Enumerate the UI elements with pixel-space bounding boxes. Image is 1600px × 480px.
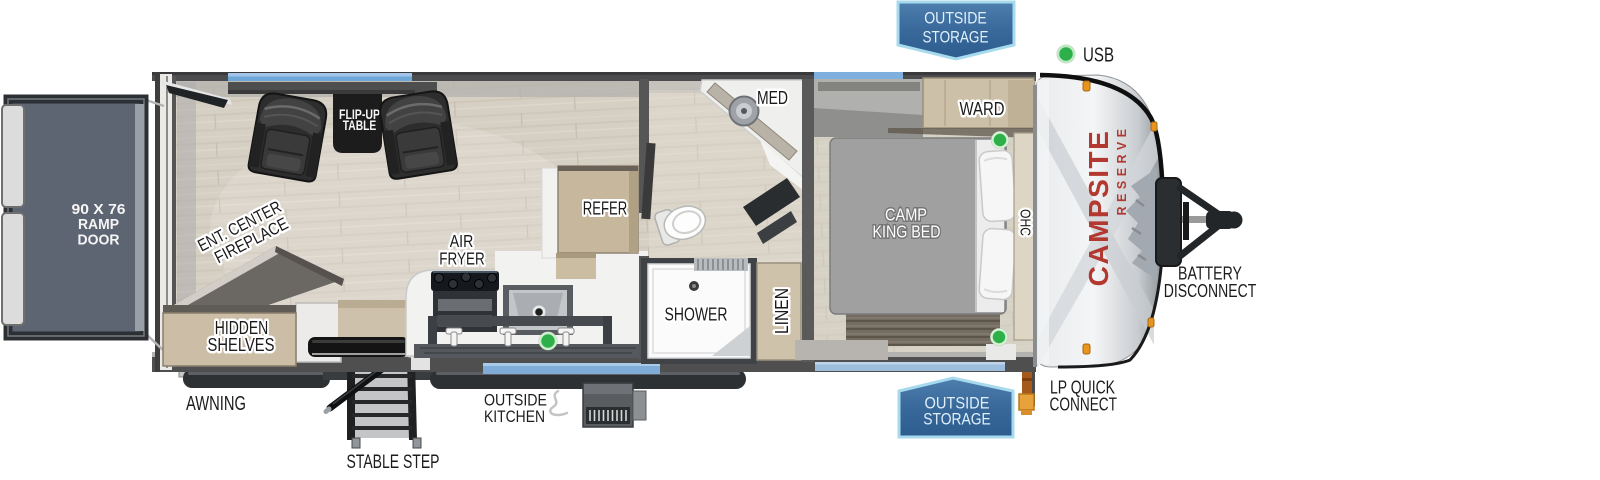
svg-text:STORAGE: STORAGE: [923, 29, 989, 47]
svg-text:RAMP: RAMP: [78, 216, 119, 233]
svg-text:STABLE STEP: STABLE STEP: [347, 452, 440, 473]
svg-text:OHC: OHC: [1016, 209, 1033, 236]
svg-text:MED: MED: [757, 88, 788, 108]
svg-text:FRYER: FRYER: [439, 249, 485, 269]
svg-text:CONNECT: CONNECT: [1050, 395, 1118, 415]
svg-text:DOOR: DOOR: [78, 232, 120, 249]
svg-text:DISCONNECT: DISCONNECT: [1164, 281, 1257, 301]
svg-text:REFER: REFER: [583, 199, 628, 219]
svg-text:SHOWER: SHOWER: [665, 304, 728, 325]
svg-text:OUTSIDE: OUTSIDE: [924, 10, 987, 28]
svg-text:USB: USB: [1083, 44, 1114, 67]
svg-text:CAMPSITE: CAMPSITE: [1083, 130, 1114, 287]
svg-text:SHELVES: SHELVES: [208, 334, 275, 355]
svg-text:KING BED: KING BED: [873, 222, 941, 242]
svg-text:STORAGE: STORAGE: [923, 410, 991, 429]
svg-text:WARD: WARD: [960, 99, 1005, 119]
svg-text:LINEN: LINEN: [772, 288, 792, 334]
svg-text:AWNING: AWNING: [186, 393, 246, 415]
svg-text:RESERVE: RESERVE: [1115, 124, 1129, 215]
svg-text:TABLE: TABLE: [343, 118, 377, 133]
svg-text:KITCHEN: KITCHEN: [484, 407, 545, 426]
